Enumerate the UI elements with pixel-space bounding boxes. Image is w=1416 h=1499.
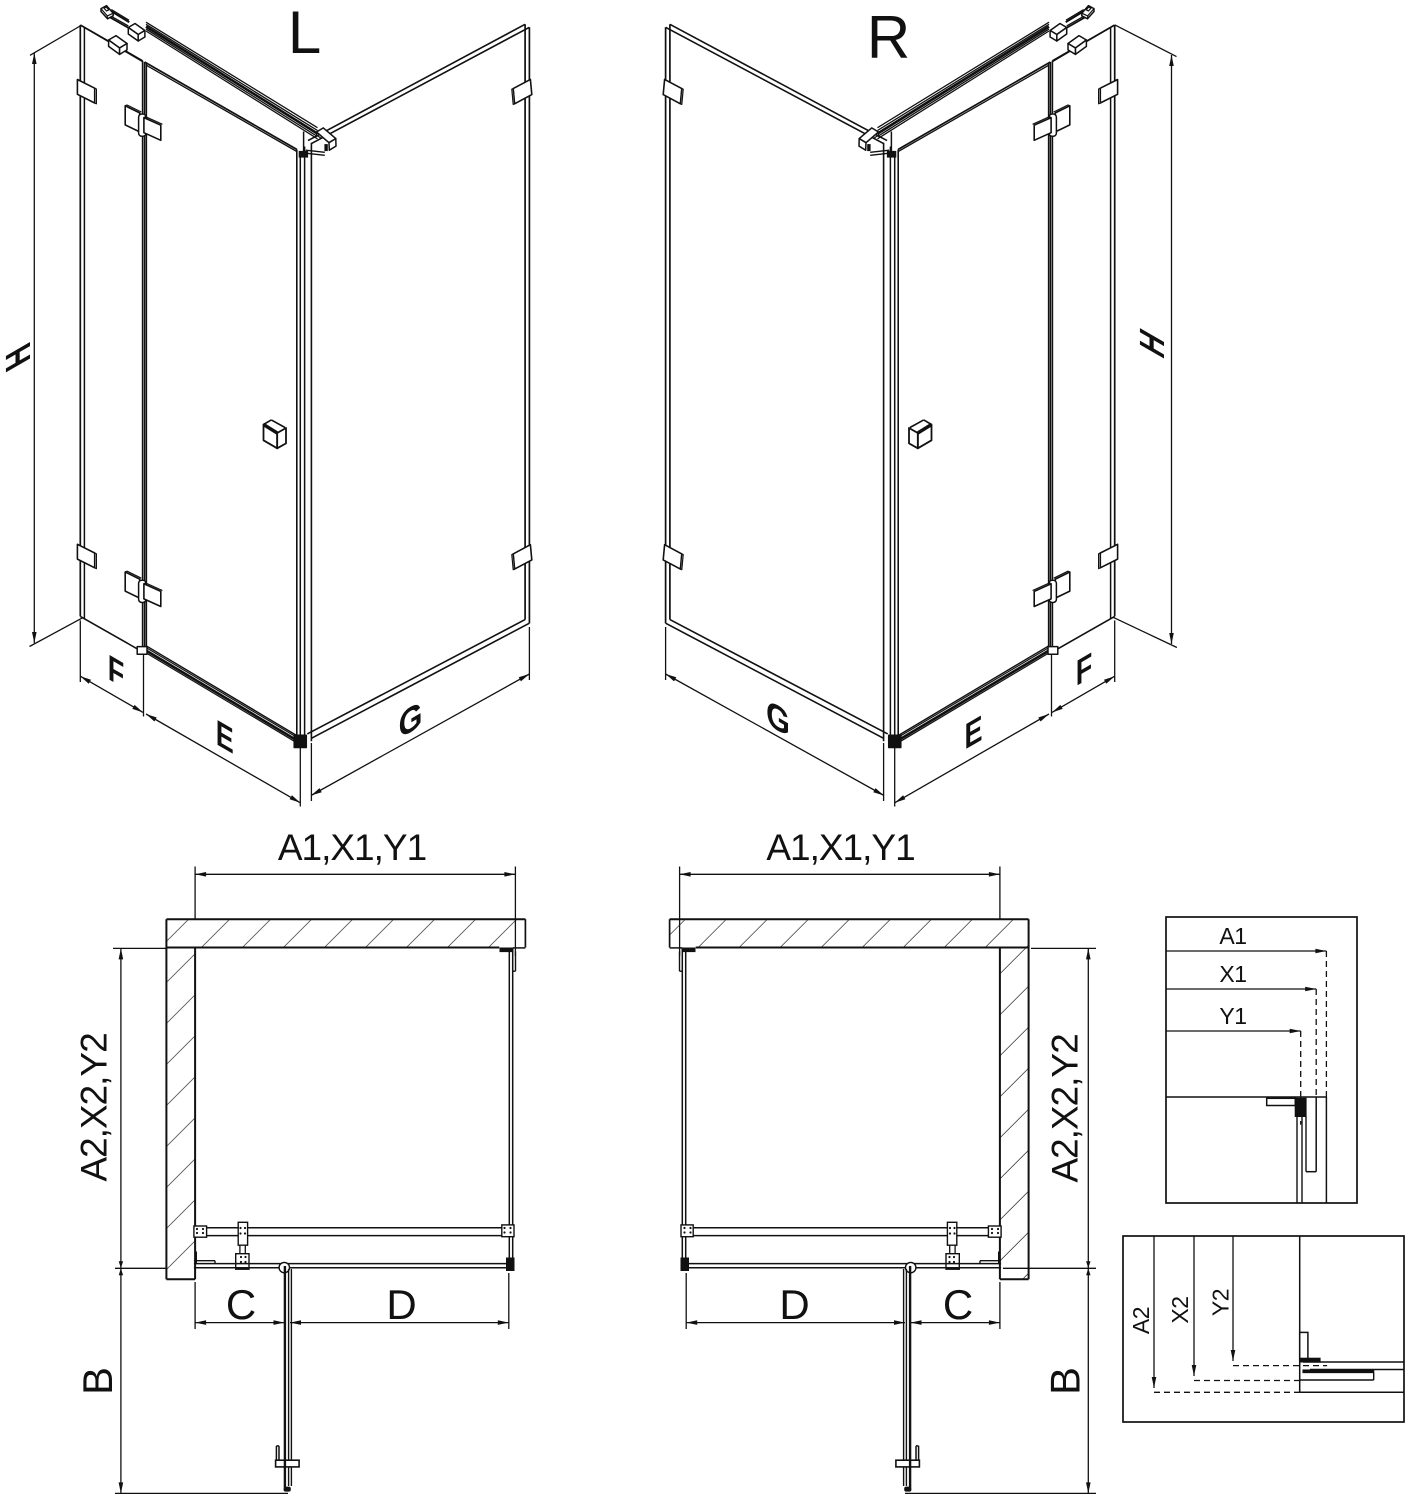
svg-text:B: B [74, 1367, 121, 1395]
svg-text:D: D [386, 1281, 416, 1328]
svg-text:X2: X2 [1167, 1296, 1193, 1323]
svg-text:A2: A2 [1128, 1307, 1154, 1334]
svg-text:R: R [867, 4, 910, 71]
svg-text:A2,X2,Y2: A2,X2,Y2 [1045, 1034, 1086, 1182]
svg-text:Y1: Y1 [1219, 1003, 1246, 1029]
svg-text:C: C [943, 1281, 973, 1328]
svg-text:A1: A1 [1219, 923, 1246, 949]
svg-text:X1: X1 [1219, 961, 1246, 987]
svg-text:C: C [226, 1281, 256, 1328]
svg-text:D: D [779, 1281, 809, 1328]
svg-text:A2,X2,Y2: A2,X2,Y2 [74, 1033, 115, 1181]
svg-text:Y2: Y2 [1208, 1289, 1234, 1316]
svg-text:L: L [288, 0, 321, 66]
svg-text:A1,X1,Y1: A1,X1,Y1 [766, 827, 914, 868]
svg-text:A1,X1,Y1: A1,X1,Y1 [278, 827, 426, 868]
svg-text:B: B [1042, 1367, 1089, 1395]
